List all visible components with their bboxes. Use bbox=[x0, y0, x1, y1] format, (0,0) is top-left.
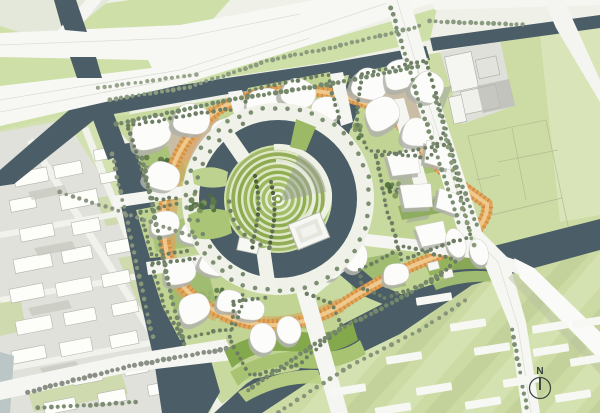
svg-text:N: N bbox=[536, 366, 543, 377]
